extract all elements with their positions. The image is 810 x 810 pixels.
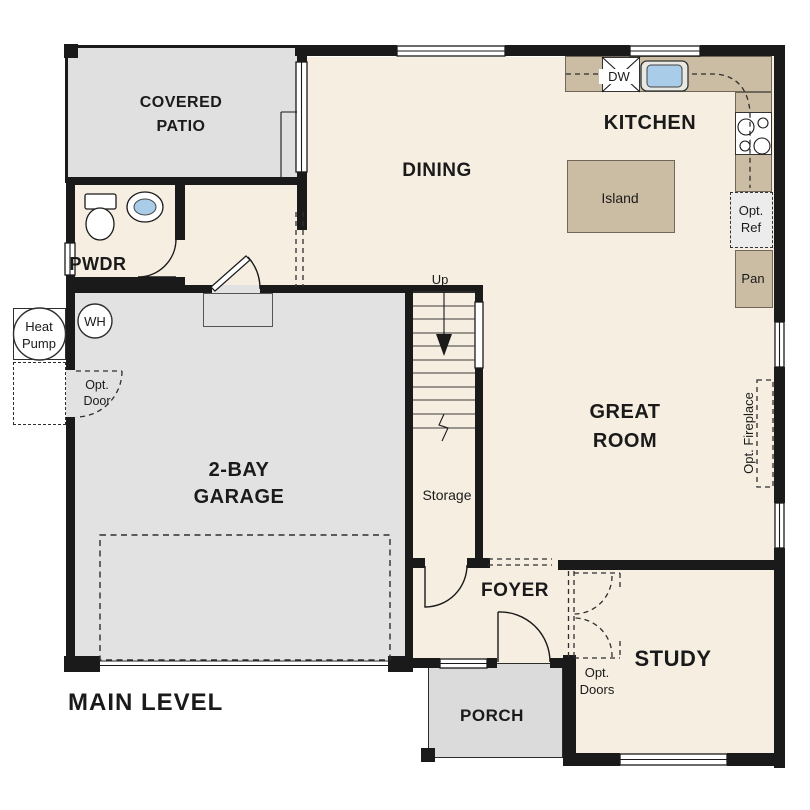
heat-pump-line2: Pump bbox=[9, 335, 69, 352]
room-label-garage: 2-BAY GARAGE bbox=[169, 457, 309, 511]
pwdr-door bbox=[138, 239, 176, 277]
room-label-foyer: FOYER bbox=[455, 580, 575, 602]
stair-railing bbox=[475, 302, 483, 368]
stairs bbox=[413, 292, 475, 441]
covered-patio-line2: PATIO bbox=[113, 115, 249, 139]
label-island: Island bbox=[570, 190, 670, 206]
front-door bbox=[498, 612, 550, 662]
great-room-line2: ROOM bbox=[555, 427, 695, 456]
toilet-tank bbox=[85, 194, 116, 209]
label-opt-door: Opt. Door bbox=[67, 377, 127, 409]
label-water-heater: WH bbox=[75, 314, 115, 329]
label-opt-ref: Opt. Ref bbox=[726, 202, 776, 236]
room-label-great-room: GREAT ROOM bbox=[555, 398, 695, 456]
room-label-porch: PORCH bbox=[432, 706, 552, 726]
pwdr-fixtures bbox=[85, 192, 163, 240]
patio-slider-door bbox=[281, 62, 307, 183]
garage-line1: 2-BAY bbox=[169, 457, 309, 484]
label-up: Up bbox=[420, 272, 460, 287]
opt-ref-line2: Ref bbox=[726, 219, 776, 236]
optional-fireplace-dashed bbox=[757, 380, 773, 487]
opt-ref-line1: Opt. bbox=[726, 202, 776, 219]
stair-direction-arrow bbox=[436, 334, 452, 356]
room-label-pwdr: PWDR bbox=[58, 254, 138, 275]
floor-plan: COVERED PATIO DINING KITCHEN PWDR 2-BAY … bbox=[0, 0, 810, 810]
covered-patio-line1: COVERED bbox=[113, 91, 249, 115]
room-label-kitchen: KITCHEN bbox=[580, 112, 720, 135]
label-dishwasher: DW bbox=[599, 69, 639, 84]
garage-door-sill bbox=[100, 661, 388, 666]
label-opt-fireplace: Opt. Fireplace bbox=[741, 378, 757, 488]
label-opt-doors: Opt. Doors bbox=[567, 664, 627, 698]
room-label-dining: DINING bbox=[377, 160, 497, 182]
opt-door-line1: Opt. bbox=[67, 377, 127, 393]
great-room-line1: GREAT bbox=[555, 398, 695, 427]
label-pantry: Pan bbox=[728, 271, 778, 286]
garage-entry-door-swing bbox=[248, 257, 260, 289]
room-label-storage: Storage bbox=[407, 487, 487, 503]
garage-entry-door-leaf bbox=[211, 256, 250, 291]
plan-title: MAIN LEVEL bbox=[68, 689, 223, 717]
kitchen-sink bbox=[641, 61, 688, 91]
cased-opening-dashes bbox=[296, 212, 552, 565]
opt-door-line2: Door bbox=[67, 393, 127, 409]
heat-pump-line1: Heat bbox=[9, 318, 69, 335]
cooktop-burners bbox=[738, 118, 770, 154]
room-label-covered-patio: COVERED PATIO bbox=[113, 91, 249, 139]
garage-door-dashed-outline bbox=[100, 535, 390, 660]
opt-doors-line1: Opt. bbox=[567, 664, 627, 681]
pwdr-sink-basin bbox=[134, 199, 156, 215]
opt-doors-line2: Doors bbox=[567, 681, 627, 698]
toilet-bowl bbox=[86, 208, 114, 240]
label-heat-pump: Heat Pump bbox=[9, 318, 69, 352]
garage-line2: GARAGE bbox=[169, 484, 309, 511]
